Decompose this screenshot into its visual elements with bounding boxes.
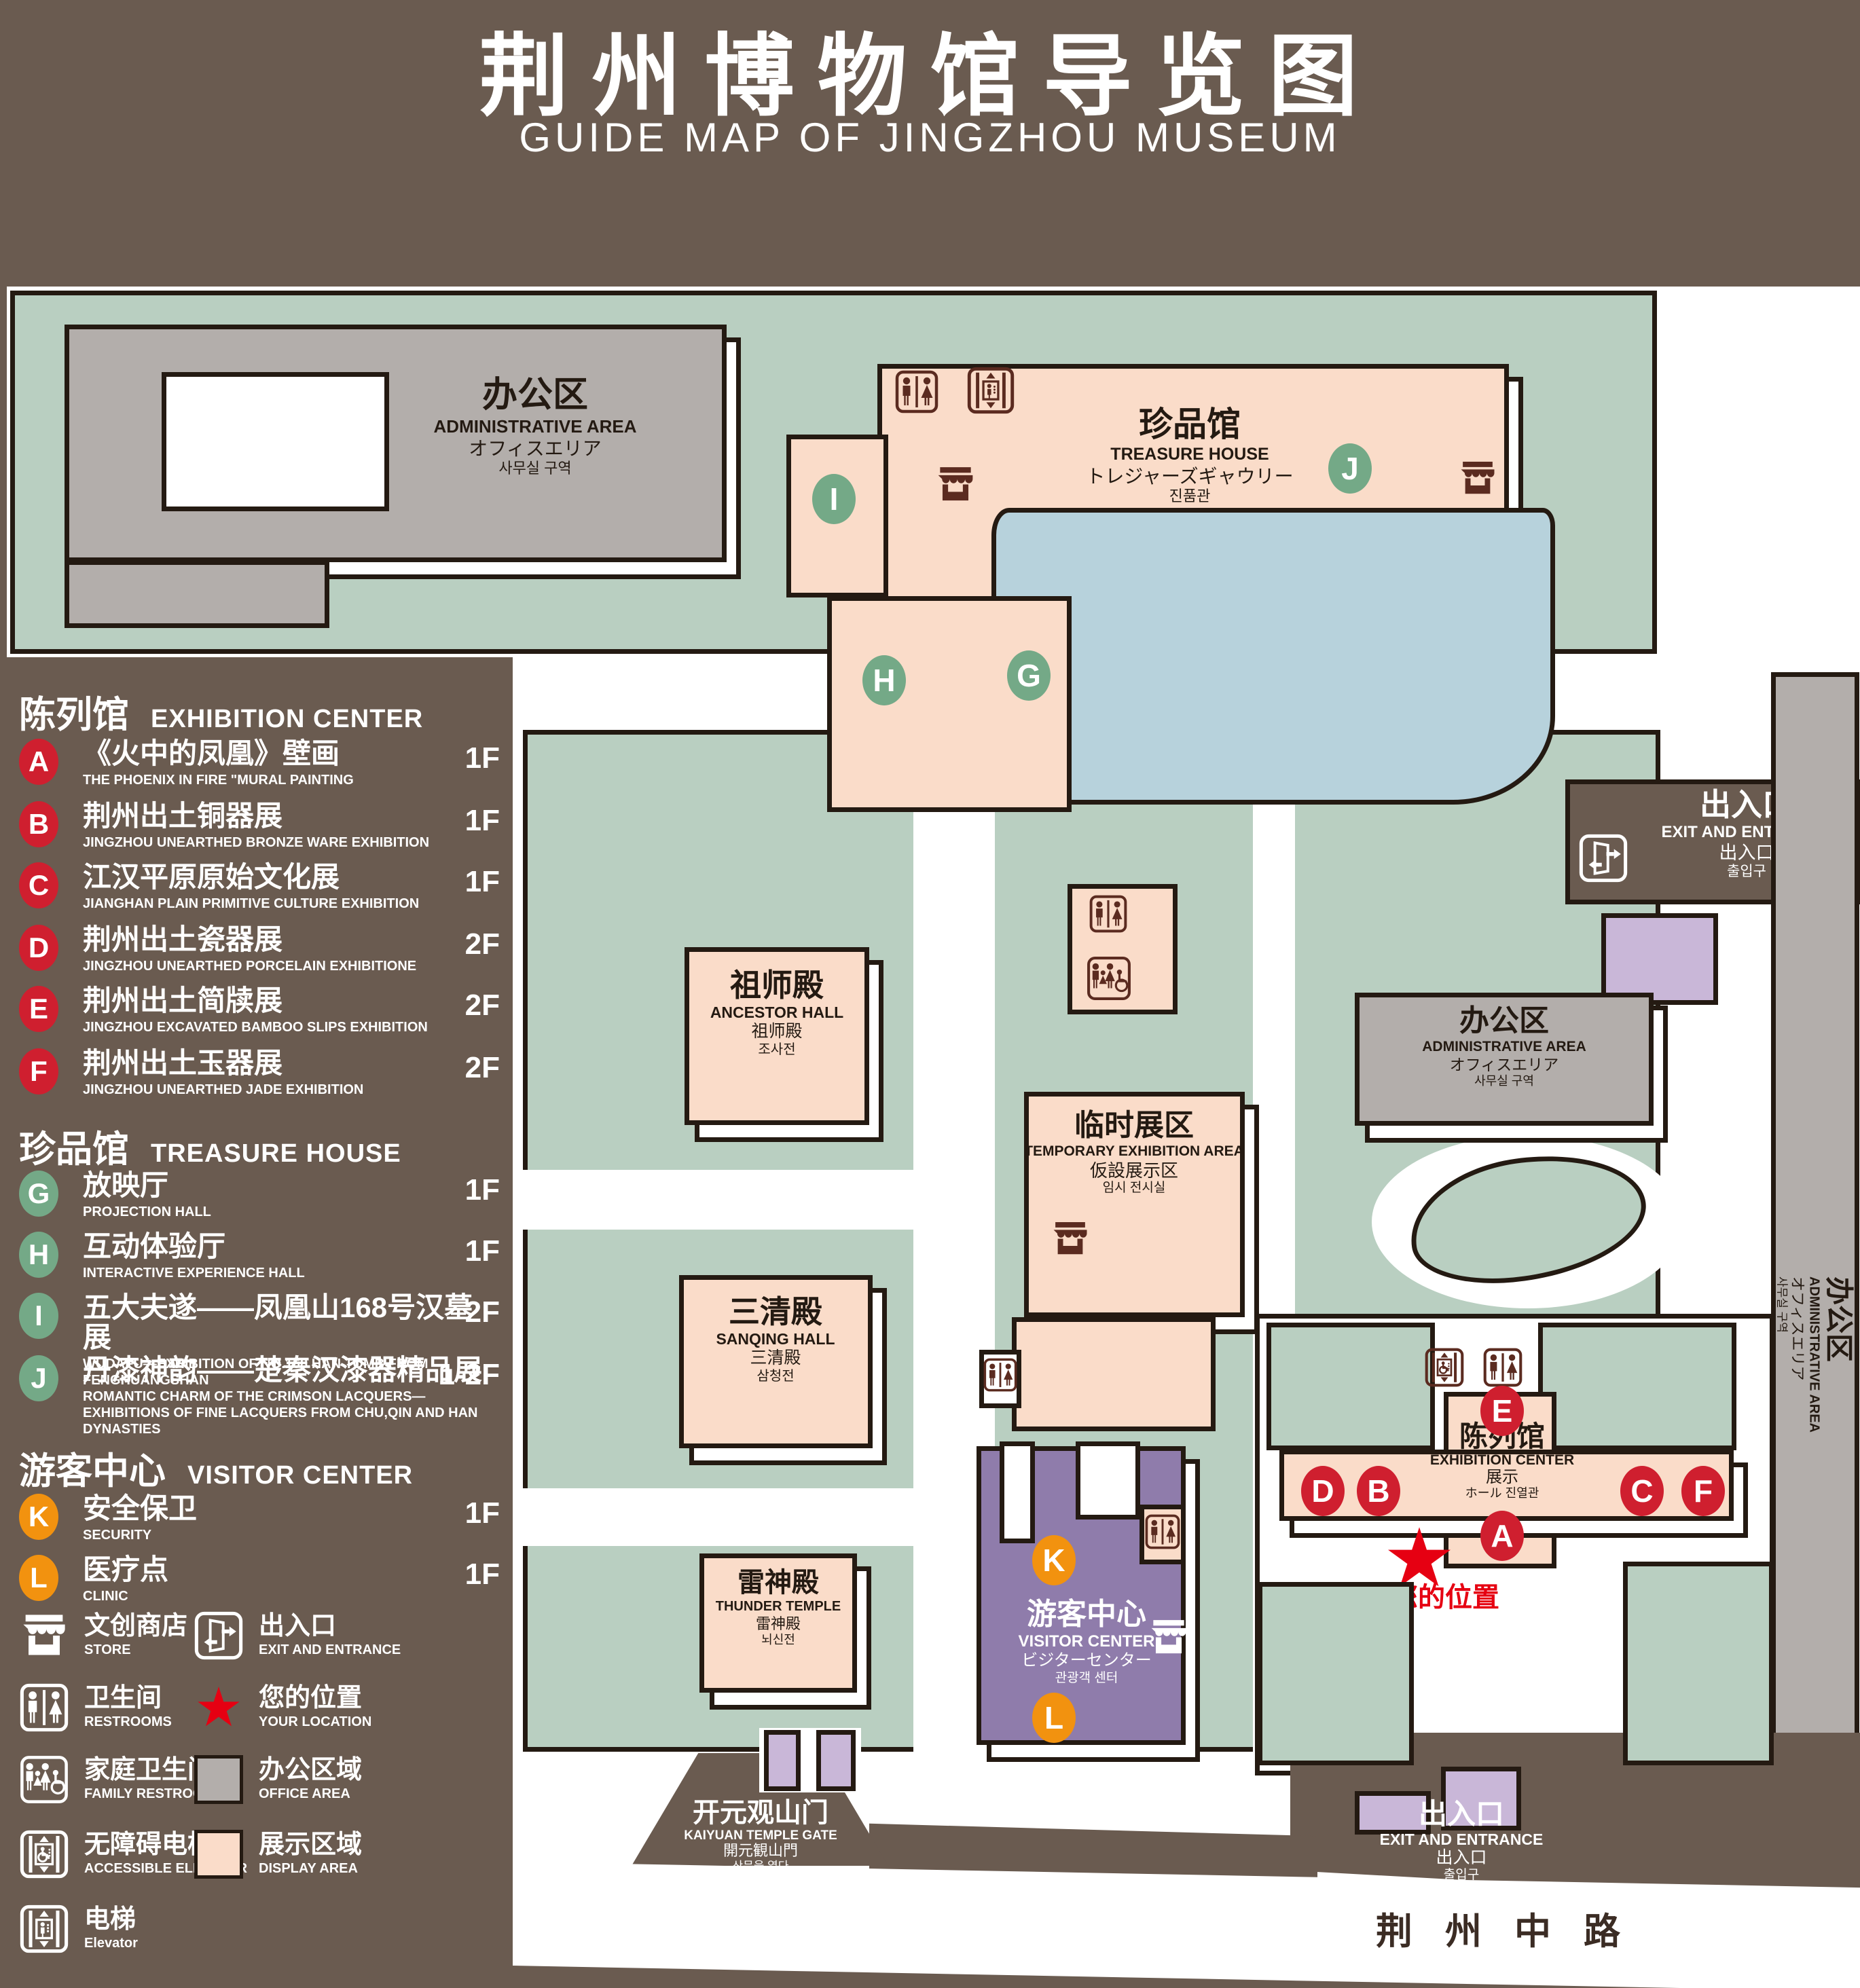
elevator-icon	[19, 1904, 69, 1954]
treasure-house-wing	[827, 596, 1072, 812]
marker-d: D	[1301, 1466, 1345, 1516]
road-label: 荆州中路	[1376, 1901, 1653, 1955]
restroom-icon	[895, 370, 938, 413]
restroom-icon	[1483, 1348, 1522, 1387]
marker-e: E	[1480, 1386, 1524, 1436]
marker-f: F	[1681, 1466, 1725, 1516]
admin-right-building	[1771, 672, 1859, 1752]
marker-j: J	[1328, 443, 1372, 494]
admin-center-right-label: 办公区 ADMINISTRATIVE AREA オフィスエリア 사무실 구역	[1422, 1004, 1586, 1088]
legend-item-e: E 荆州出土简牍展 JINGZHOU EXCAVATED BAMBOO SLIP…	[19, 986, 500, 1035]
gate-building	[816, 1730, 856, 1791]
marker-g: G	[1007, 650, 1051, 701]
exit-icon	[1579, 834, 1628, 883]
visitor-center-label: 游客中心 VISITOR CENTER ビジターセンター 관광객 센터	[1019, 1597, 1155, 1686]
family-restroom-icon	[1087, 956, 1131, 1001]
pond	[991, 508, 1555, 805]
marker-a: A	[1480, 1511, 1524, 1561]
badge-b: B	[19, 801, 58, 847]
path-horizontal-2	[523, 1488, 913, 1546]
elevator-icon	[967, 367, 1015, 414]
legend-icon-exit: 出入口EXIT AND ENTRANCE	[194, 1610, 401, 1661]
store-icon	[1051, 1222, 1089, 1255]
legend-item-d: D 荆州出土瓷器展 JINGZHOU UNEARTHED PORCELAIN E…	[19, 925, 500, 974]
legend-section-exhibition-center: 陈列馆EXHIBITION CENTER	[19, 684, 500, 738]
marker-k: K	[1032, 1535, 1076, 1585]
legend-item-b: B 荆州出土铜器展 JINGZHOU UNEARTHED BRONZE WARE…	[19, 801, 500, 851]
legend-icon-office-area: 办公区域OFFICE AREA	[194, 1754, 362, 1805]
legend-icon-display-area: 展示区域DISPLAY AREA	[194, 1829, 362, 1879]
building-block	[1601, 913, 1718, 1005]
store-icon	[936, 467, 975, 502]
legend-item-a: A 《火中的凤凰》壁画 THE PHOENIX IN FIRE "MURAL P…	[19, 739, 500, 788]
badge-d: D	[19, 925, 58, 971]
thunder-temple-label: 雷神殿 THUNDER TEMPLE 雷神殿 뇌신전	[716, 1567, 841, 1647]
page-subtitle: GUIDE MAP OF JINGZHOU MUSEUM	[0, 114, 1860, 161]
legend-item-c: C 江汉平原原始文化展 JIANGHAN PLAIN PRIMITIVE CUL…	[19, 862, 500, 912]
ancestor-hall-label: 祖师殿 ANCESTOR HALL 祖师殿 조사전	[710, 967, 843, 1058]
temporary-exhibition-annex	[1012, 1317, 1216, 1431]
family-restroom-icon	[19, 1754, 69, 1805]
badge-l: L	[19, 1555, 58, 1601]
legend-icon-your-location: ★ 您的位置YOUR LOCATION	[194, 1682, 371, 1733]
exhibition-lawn-bl	[1258, 1582, 1414, 1765]
badge-a: A	[19, 739, 58, 785]
exhibition-lawn-tl	[1266, 1323, 1435, 1450]
marker-b: B	[1357, 1466, 1400, 1516]
treasure-house-label: 珍品馆 TREASURE HOUSE トレジャーズギャウリー 진품관	[1086, 405, 1293, 504]
legend-item-l: L 医疗点 CLINIC 1F	[19, 1555, 500, 1604]
visitor-center-notch	[1076, 1441, 1140, 1520]
store-icon	[19, 1610, 69, 1661]
accessible-elevator-icon	[19, 1829, 69, 1879]
badge-j: J	[19, 1355, 58, 1401]
restroom-icon	[983, 1358, 1017, 1392]
visitor-center-notch	[1000, 1441, 1035, 1543]
badge-k: K	[19, 1494, 58, 1540]
path-horizontal-1	[523, 1170, 913, 1230]
admin-top-left-annex	[65, 560, 329, 628]
store-icon	[1149, 1620, 1188, 1655]
legend-icon-store: 文创商店STORE	[19, 1610, 187, 1661]
kaiyuan-gate-label: 开元观山门 KAIYUAN TEMPLE GATE 開元観山門 산문을 열다	[684, 1798, 837, 1873]
legend-item-h: H 互动体验厅 INTERACTIVE EXPERIENCE HALL 1F	[19, 1232, 500, 1281]
badge-e: E	[19, 986, 58, 1032]
marker-i: I	[812, 474, 856, 524]
restroom-icon	[1089, 895, 1127, 933]
exhibition-lawn-br	[1623, 1562, 1774, 1765]
legend-item-j: J 丹漆神韵——楚秦汉漆器精品展 ROMANTIC CHARM OF THE C…	[19, 1355, 500, 1437]
display-area-swatch	[194, 1829, 244, 1879]
admin-top-left-label: 办公区 ADMINISTRATIVE AREA オフィスエリア 사무실 구역	[434, 375, 637, 477]
sanqing-hall-label: 三清殿 SANQING HALL 三清殿 삼청전	[716, 1293, 835, 1384]
temporary-exhibition-label: 临时展区 TEMPORARY EXHIBITION AREA 仮設展示区 임시 …	[1024, 1108, 1244, 1196]
legend-section-visitor-center: 游客中心VISITOR CENTER	[19, 1441, 500, 1494]
exit-icon	[194, 1610, 244, 1661]
badge-i: I	[19, 1293, 58, 1339]
badge-c: C	[19, 862, 58, 908]
badge-h: H	[19, 1232, 58, 1278]
marker-l: L	[1032, 1693, 1076, 1743]
legend-section-treasure-house: 珍品馆TREASURE HOUSE	[19, 1119, 500, 1173]
badge-g: G	[19, 1171, 58, 1217]
legend-icon-restrooms: 卫生间RESTROOMS	[19, 1682, 172, 1733]
marker-h: H	[862, 655, 906, 705]
marker-c: C	[1620, 1466, 1664, 1516]
admin-top-left-courtyard	[162, 372, 389, 511]
badge-f: F	[19, 1048, 58, 1094]
exit-bottom-label: 出入口 EXIT AND ENTRANCE 出入口 출입구	[1380, 1798, 1544, 1882]
legend-item-k: K 安全保卫 SECURITY 1F	[19, 1494, 500, 1543]
legend-icon-elevator: 电梯Elevator	[19, 1904, 138, 1954]
legend-item-g: G 放映厅 PROJECTION HALL 1F	[19, 1171, 500, 1220]
restroom-icon	[19, 1682, 69, 1733]
gate-building	[764, 1730, 801, 1791]
restroom-icon	[1145, 1514, 1180, 1549]
guide-map-poster: 荆州博物馆导览图 GUIDE MAP OF JINGZHOU MUSEUM 办公…	[0, 0, 1860, 1988]
your-location-star-icon: ★	[194, 1682, 244, 1733]
legend-item-f: F 荆州出土玉器展 JINGZHOU UNEARTHED JADE EXHIBI…	[19, 1048, 500, 1098]
office-area-swatch	[194, 1754, 244, 1805]
accessible-elevator-icon	[1425, 1348, 1464, 1387]
store-icon	[1459, 462, 1497, 495]
